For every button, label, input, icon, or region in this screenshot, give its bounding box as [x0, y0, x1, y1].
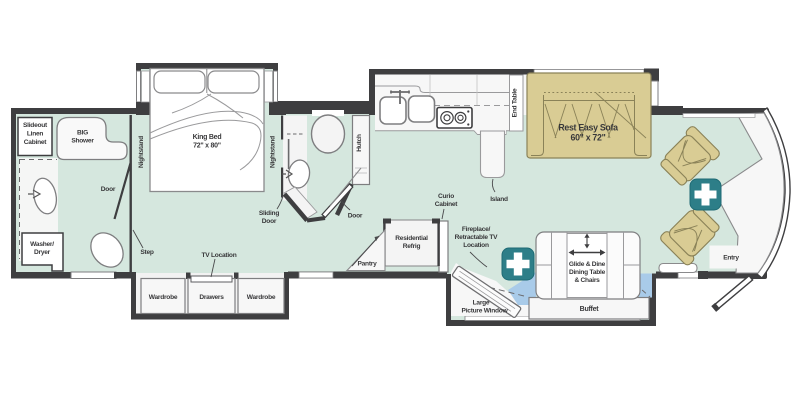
svg-text:Residential: Residential — [395, 235, 428, 242]
svg-text:Linen: Linen — [27, 131, 44, 138]
svg-text:BIG: BIG — [77, 130, 88, 137]
svg-text:Door: Door — [262, 218, 277, 225]
svg-text:72" x 80": 72" x 80" — [193, 143, 221, 150]
svg-text:Washer/: Washer/ — [30, 241, 54, 248]
svg-text:Dining Table: Dining Table — [569, 269, 606, 276]
svg-text:Shower: Shower — [71, 138, 94, 145]
svg-text:& Chairs: & Chairs — [574, 277, 600, 284]
svg-text:Location: Location — [463, 242, 489, 249]
svg-text:End Table: End Table — [512, 88, 519, 117]
svg-text:Wardrobe: Wardrobe — [247, 294, 276, 301]
svg-text:Rest Easy Sofa: Rest Easy Sofa — [558, 123, 618, 133]
svg-text:TV Location: TV Location — [202, 252, 237, 259]
svg-text:Slideout: Slideout — [23, 122, 48, 129]
svg-text:Dryer: Dryer — [34, 249, 51, 256]
svg-text:Refrig: Refrig — [403, 243, 421, 250]
svg-text:Drawers: Drawers — [199, 294, 224, 301]
svg-text:Hutch: Hutch — [356, 134, 363, 152]
svg-text:Door: Door — [348, 213, 363, 220]
svg-text:Glide & Dine: Glide & Dine — [569, 261, 606, 268]
svg-text:Cabinet: Cabinet — [435, 201, 458, 208]
svg-text:Entry: Entry — [723, 255, 739, 262]
svg-text:Nightstand: Nightstand — [270, 136, 277, 168]
svg-text:King Bed: King Bed — [193, 134, 222, 141]
svg-text:Fireplace/: Fireplace/ — [462, 226, 491, 233]
svg-text:Curio: Curio — [438, 193, 454, 200]
svg-text:Step: Step — [140, 249, 154, 256]
svg-text:Cabinet: Cabinet — [24, 139, 47, 146]
svg-text:Large: Large — [473, 300, 490, 307]
svg-text:Island: Island — [490, 196, 508, 203]
svg-text:Nightstand: Nightstand — [138, 136, 145, 168]
svg-text:Wardrobe: Wardrobe — [149, 294, 178, 301]
svg-text:Buffet: Buffet — [580, 306, 600, 313]
svg-text:60" x 72": 60" x 72" — [571, 133, 606, 143]
svg-text:Door: Door — [101, 186, 116, 193]
svg-text:Sliding: Sliding — [259, 210, 279, 217]
svg-text:Retractable TV: Retractable TV — [455, 234, 499, 241]
svg-text:Picture Window: Picture Window — [462, 308, 509, 315]
svg-text:Pantry: Pantry — [357, 261, 377, 268]
